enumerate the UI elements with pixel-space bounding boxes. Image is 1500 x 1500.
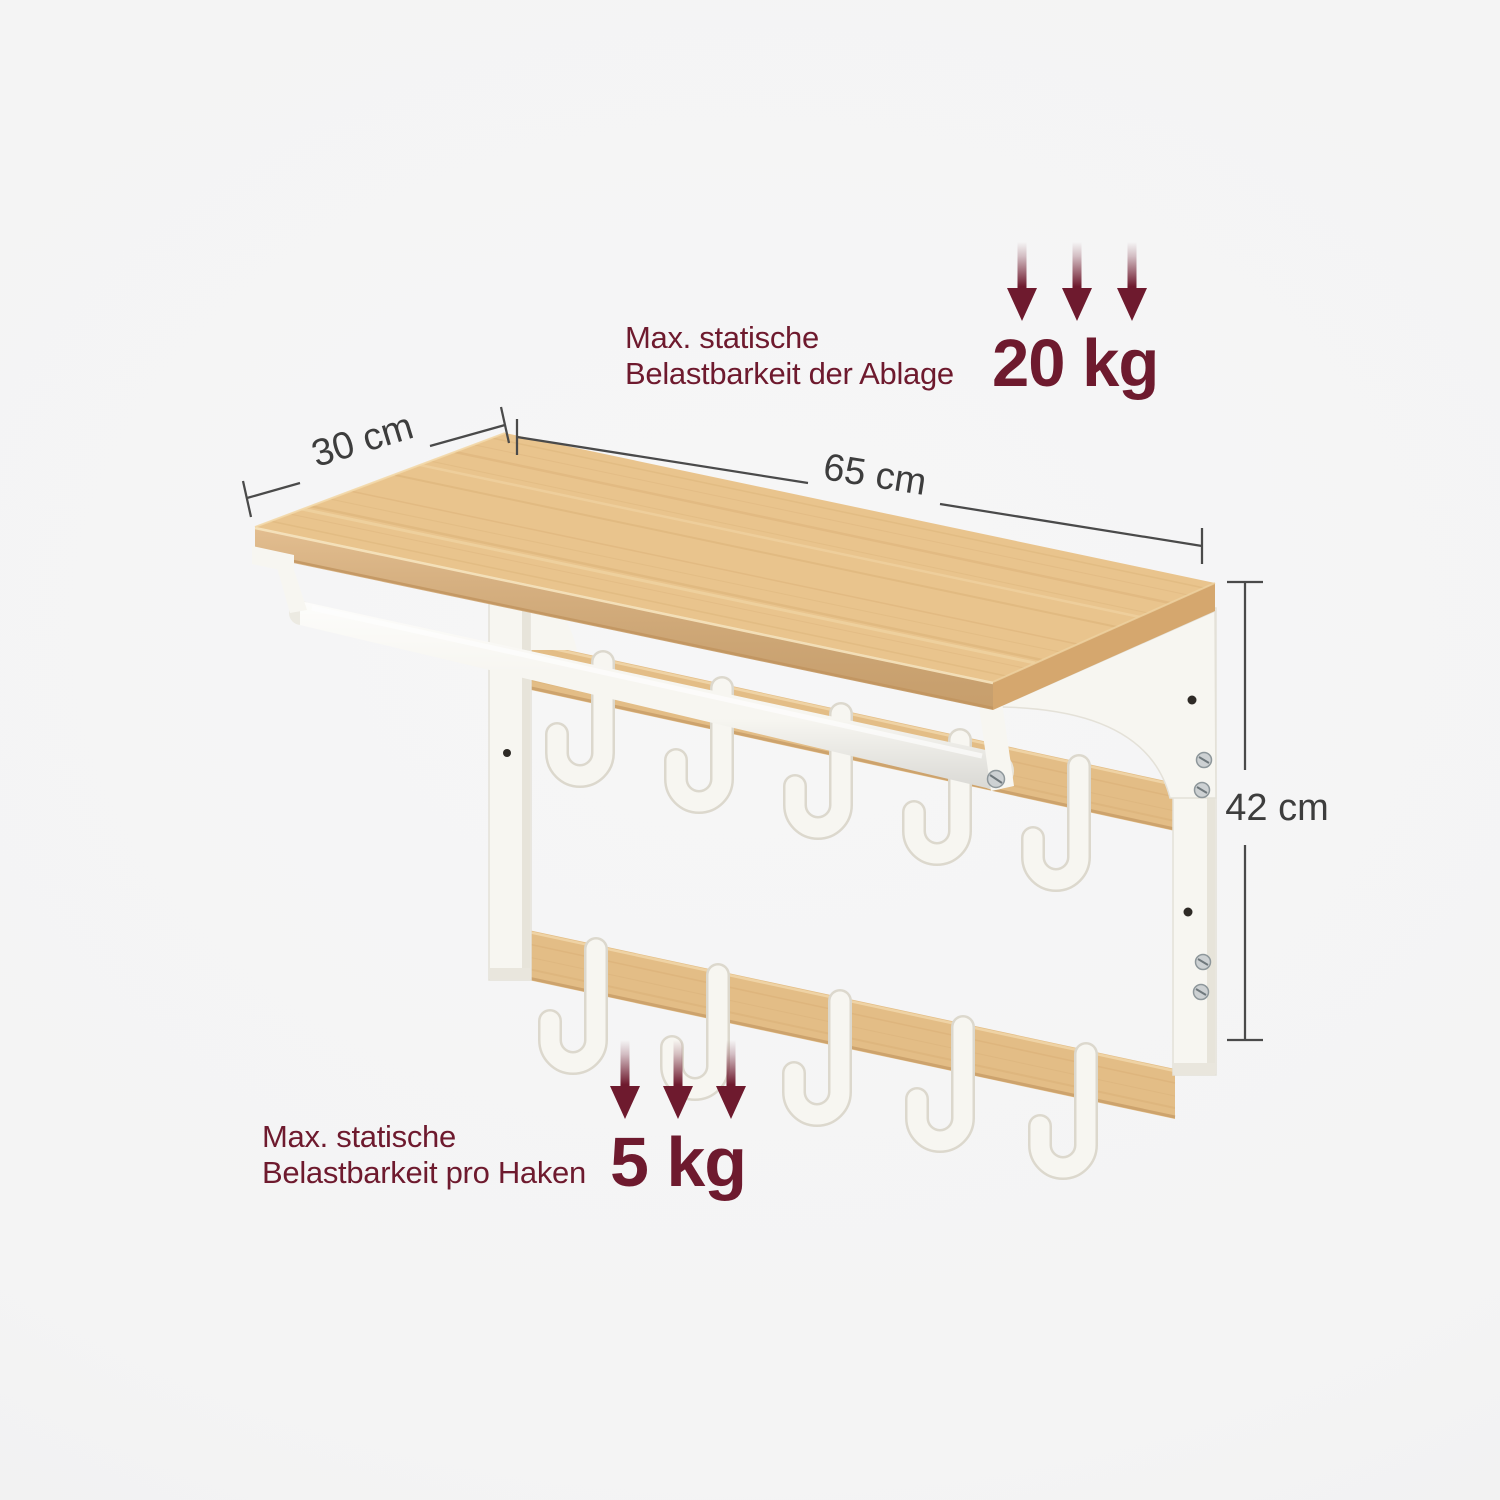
right-upright-bottom-cap [1174, 1063, 1215, 1075]
left-upright-hole [503, 749, 511, 757]
rail-left-strap [274, 557, 307, 613]
down-arrow-icon [1062, 242, 1092, 321]
hook-load-note: Max. statische Belastbarkeit pro Haken [262, 1119, 586, 1191]
right-upright-hole-bottom [1184, 908, 1193, 917]
product-illustration: 30 cm 65 cm 42 cm [0, 0, 1500, 1500]
shelf-load-note-line2: Belastbarkeit der Ablage [625, 356, 954, 392]
hook-load-note-line1: Max. statische [262, 1119, 586, 1155]
dim-height-label: 42 cm [1225, 787, 1328, 829]
right-upright-hole-top [1188, 696, 1197, 705]
hook-load-note-line2: Belastbarkeit pro Haken [262, 1155, 586, 1191]
dim-height: 42 cm [1225, 582, 1328, 1040]
dim-depth-line-a [247, 483, 300, 498]
shelf-load-note-line1: Max. statische [625, 320, 954, 356]
dim-depth-label: 30 cm [307, 405, 418, 475]
down-arrow-icon [1117, 242, 1147, 321]
down-arrow-icon [610, 1040, 640, 1119]
shelf-load-value: 20 kg [992, 331, 1158, 397]
shelf [255, 433, 1215, 710]
hook-load-arrows [610, 1040, 746, 1119]
left-upright-bottom-cap [490, 968, 530, 979]
hook-load-value: 5 kg [610, 1127, 746, 1197]
shelf-load-arrows [1007, 242, 1147, 321]
down-arrow-icon [663, 1040, 693, 1119]
down-arrow-icon [1007, 242, 1037, 321]
dim-depth-tick-left [243, 481, 251, 517]
shelf-load-note: Max. statische Belastbarkeit der Ablage [625, 320, 954, 392]
product-image: 30 cm 65 cm 42 cm Max. statische Belastb… [0, 0, 1500, 1500]
dim-width-label: 65 cm [820, 446, 929, 504]
down-arrow-icon [716, 1040, 746, 1119]
left-upright-side-shade [522, 591, 530, 979]
